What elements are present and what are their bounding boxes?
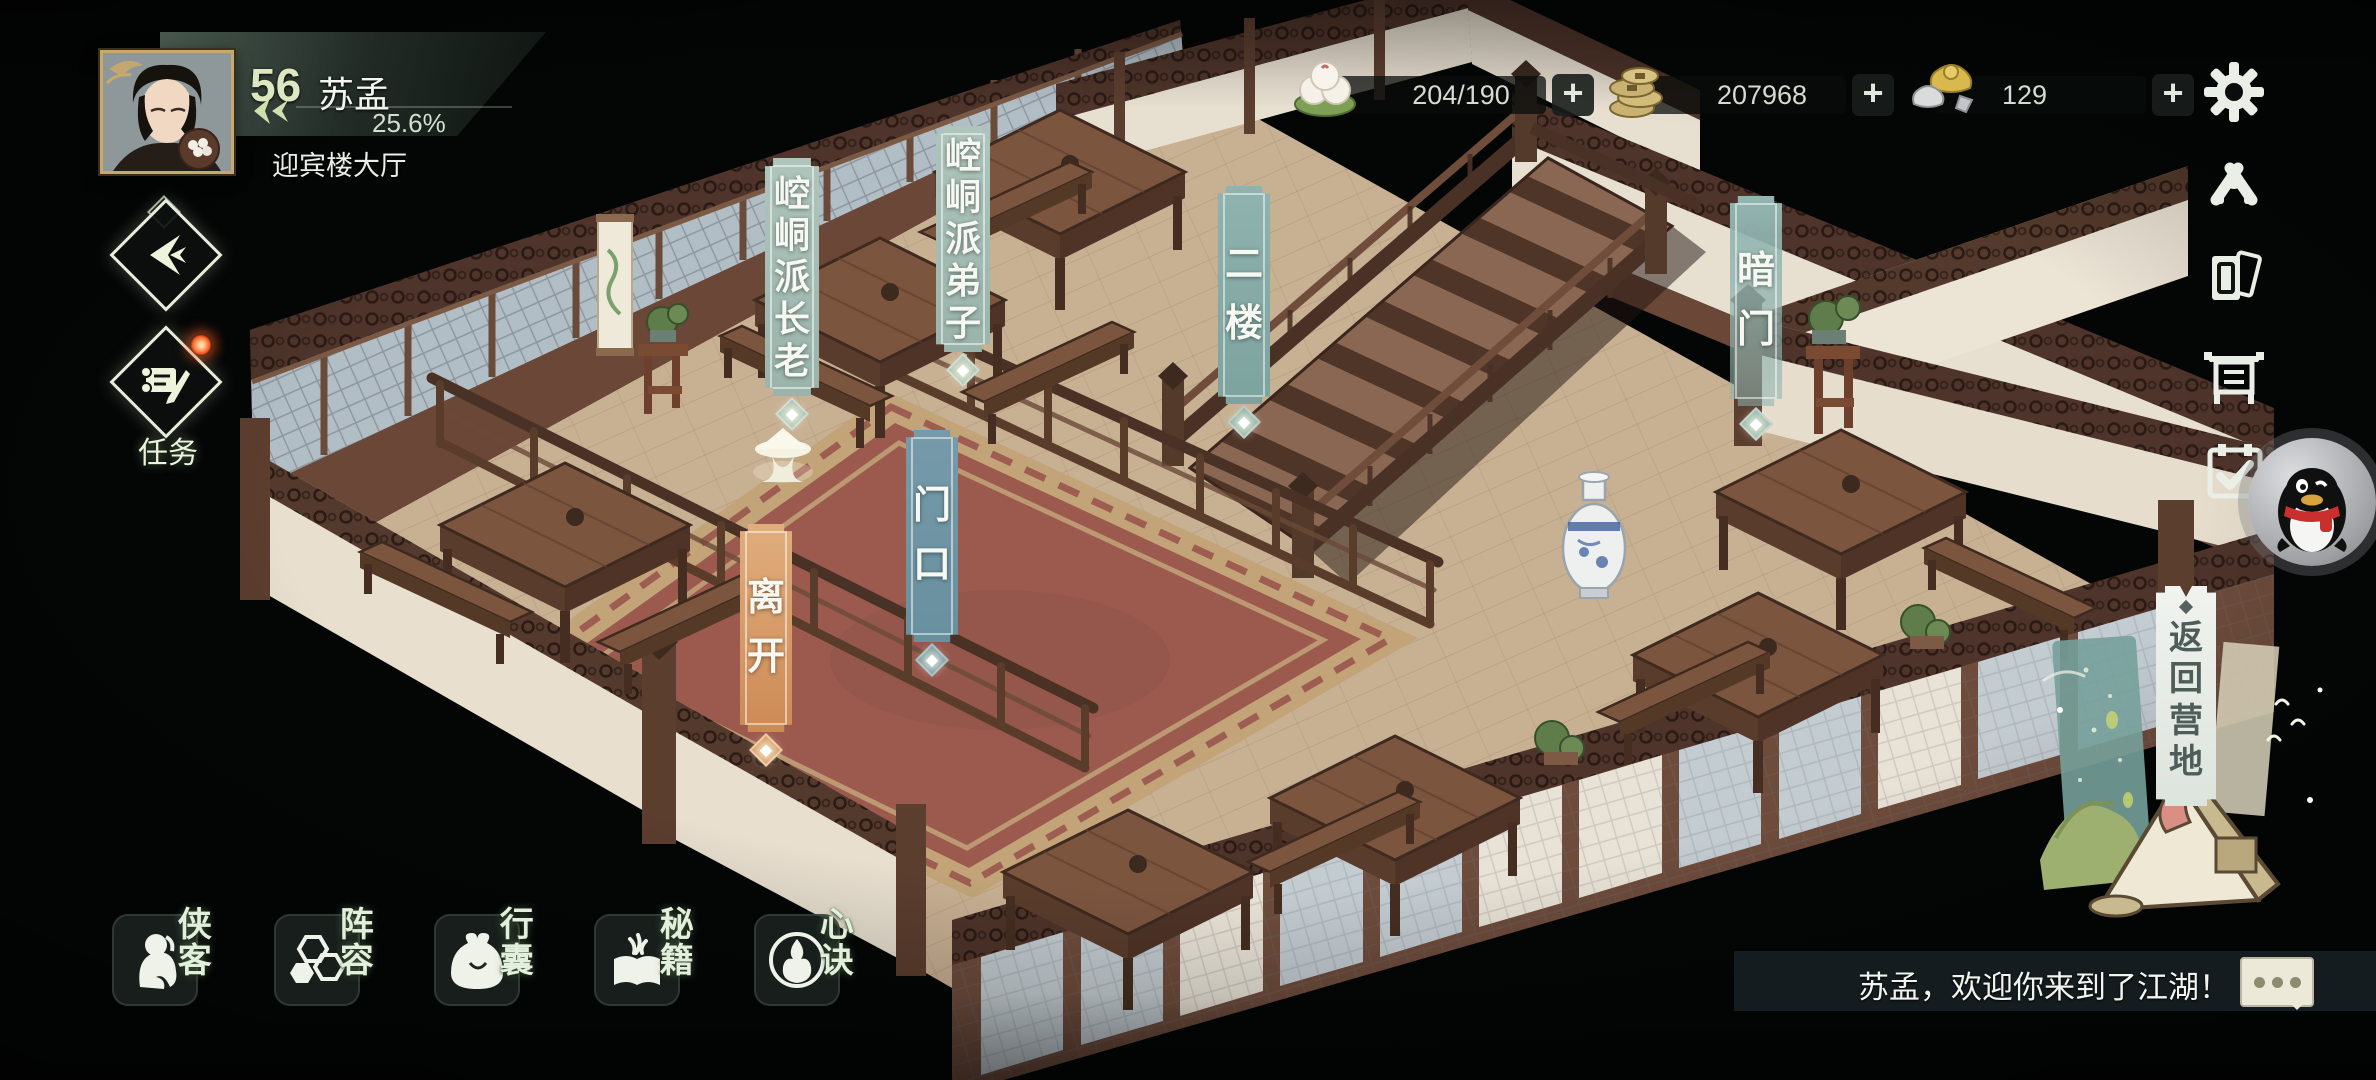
task-label: 任务 — [118, 428, 218, 472]
avatar-portrait — [103, 53, 231, 171]
game-screen: 崆峒派长老 崆峒派弟子 二楼 暗门 门口 离开 56 苏孟 25.6% 迎宾楼大… — [0, 0, 2376, 1080]
scene-label-doorway[interactable]: 门口 — [906, 430, 958, 672]
buns-icon — [1290, 56, 1360, 122]
scene-label-text: 崆峒派长老 — [771, 173, 812, 382]
menu-heroes-label: 侠客 — [176, 908, 216, 979]
task-scroll-icon — [138, 354, 194, 410]
stamina-value: 204/190 — [1412, 80, 1510, 111]
scroll-painting — [596, 214, 634, 356]
ingot-add-button[interactable]: + — [2152, 74, 2194, 116]
scene-label-text: 离开 — [744, 569, 788, 687]
exp-chevrons-icon — [248, 96, 292, 126]
menu-formation-label: 阵容 — [338, 908, 378, 979]
menu-mindset-label: 心诀 — [818, 908, 858, 979]
card-stack-icon[interactable] — [2204, 248, 2264, 308]
banner-pendant-icon — [915, 643, 949, 677]
notice-board-icon[interactable] — [2204, 344, 2264, 406]
scene-label-text: 暗门 — [1734, 242, 1778, 360]
menu-bag-label: 行囊 — [498, 908, 538, 979]
scene-label-leave[interactable]: 离开 — [740, 524, 792, 762]
task-notification-dot — [190, 334, 212, 356]
coins-icon — [1602, 56, 1672, 122]
menu-manuals-label: 秘籍 — [658, 908, 698, 979]
scene-label-kongtong-elder[interactable]: 崆峒派长老 — [765, 158, 819, 426]
ingot-value: 129 — [2002, 80, 2047, 111]
scene-label-text: 二楼 — [1222, 236, 1266, 354]
back-arrow-icon — [140, 229, 192, 281]
banner-pendant-icon — [1739, 407, 1773, 441]
scene-label-second-floor[interactable]: 二楼 — [1218, 186, 1270, 434]
banner-pendant-icon — [749, 733, 783, 767]
system-message-text: 苏孟，欢迎你来到了江湖！ — [1770, 962, 2230, 1007]
back-button[interactable] — [126, 215, 206, 295]
copper-add-button[interactable]: + — [1852, 74, 1894, 116]
scene-label-text: 崆峒派弟子 — [942, 135, 983, 344]
ingot-icon — [1908, 56, 1978, 122]
player-progress: 25.6% — [372, 108, 446, 139]
scene-label-hidden-door[interactable]: 暗门 — [1730, 196, 1782, 436]
banner-pendant-icon — [946, 353, 980, 387]
gear-icon settings-button[interactable] — [2202, 60, 2266, 124]
copper-value: 207968 — [1717, 80, 1807, 111]
banner-pendant-icon — [775, 397, 809, 431]
player-avatar[interactable] — [100, 50, 234, 174]
tablet-diamond-icon — [2179, 600, 2193, 614]
return-camp-button[interactable]: 返回营地 — [2156, 586, 2216, 806]
handshake-icon ally-button[interactable] — [2204, 150, 2264, 210]
qq-penguin-icon qq-button[interactable] — [2248, 438, 2376, 566]
scene-label-kongtong-disciple[interactable]: 崆峒派弟子 — [936, 126, 990, 382]
stamina-add-button[interactable]: + — [1552, 74, 1594, 116]
location-label: 迎宾楼大厅 — [272, 144, 407, 183]
scene-label-text: 门口 — [910, 477, 954, 595]
return-camp-label: 返回营地 — [2167, 618, 2204, 784]
banner-pendant-icon — [1227, 405, 1261, 439]
chat-bubble-icon chat-button[interactable] — [2240, 957, 2314, 1007]
